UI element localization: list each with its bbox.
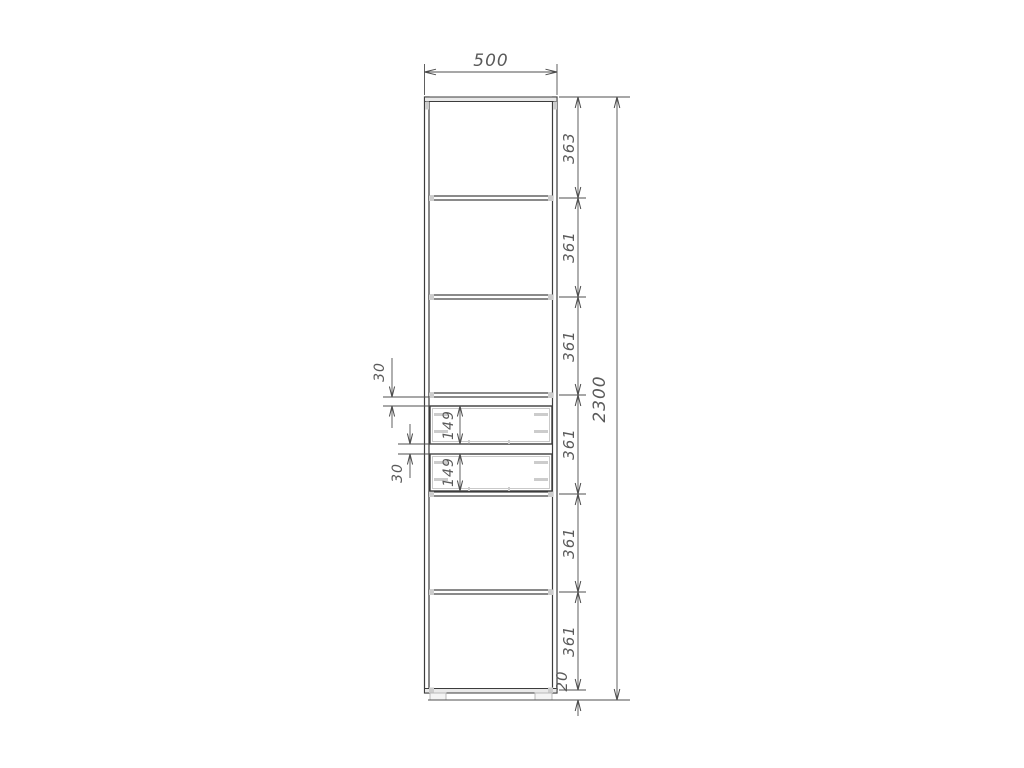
height-label: 2300 — [590, 375, 610, 422]
drawer1-height-label: 149 — [441, 410, 457, 440]
left-side-panel — [425, 97, 430, 693]
shelves — [429, 196, 553, 594]
right-side-panel — [553, 97, 558, 693]
gap1-extension-lines — [383, 397, 430, 406]
dimension-drawer-gap-1: 30 — [372, 358, 430, 428]
shelf-5 — [429, 590, 553, 594]
dimension-width: 500 — [425, 51, 558, 95]
section-2-label: 361 — [560, 231, 578, 263]
cabinet-technical-drawing: 500 2300 363 361 361 361 361 361 20 30 3… — [0, 0, 1024, 768]
right-foot — [535, 693, 552, 700]
dimension-sections-chain: 363 361 361 361 361 361 20 — [553, 97, 586, 716]
bottom-panel — [425, 689, 558, 694]
feet — [428, 693, 557, 700]
shelf-3 — [429, 393, 553, 397]
section-1-label: 363 — [560, 132, 578, 164]
drawer2-height-label: 149 — [441, 457, 457, 487]
section-3-label: 361 — [560, 330, 578, 362]
section-5-label: 361 — [560, 527, 578, 559]
dimension-overall-height: 2300 — [545, 97, 630, 700]
shelf-2 — [429, 295, 553, 299]
plinth-label: 20 — [553, 670, 571, 691]
shelf-4 — [429, 492, 553, 496]
cabinet-carcass — [425, 97, 558, 700]
gap2-extension-lines — [398, 444, 470, 454]
drawing-canvas: 500 2300 363 361 361 361 361 361 20 30 3… — [0, 0, 1024, 768]
width-label: 500 — [473, 51, 508, 71]
shelf-1 — [429, 196, 553, 200]
section-6-label: 361 — [560, 625, 578, 657]
left-foot — [430, 693, 446, 700]
gap2-label: 30 — [390, 463, 406, 483]
section-4-label: 361 — [560, 428, 578, 460]
gap1-label: 30 — [372, 362, 388, 382]
top-panel — [425, 97, 558, 102]
